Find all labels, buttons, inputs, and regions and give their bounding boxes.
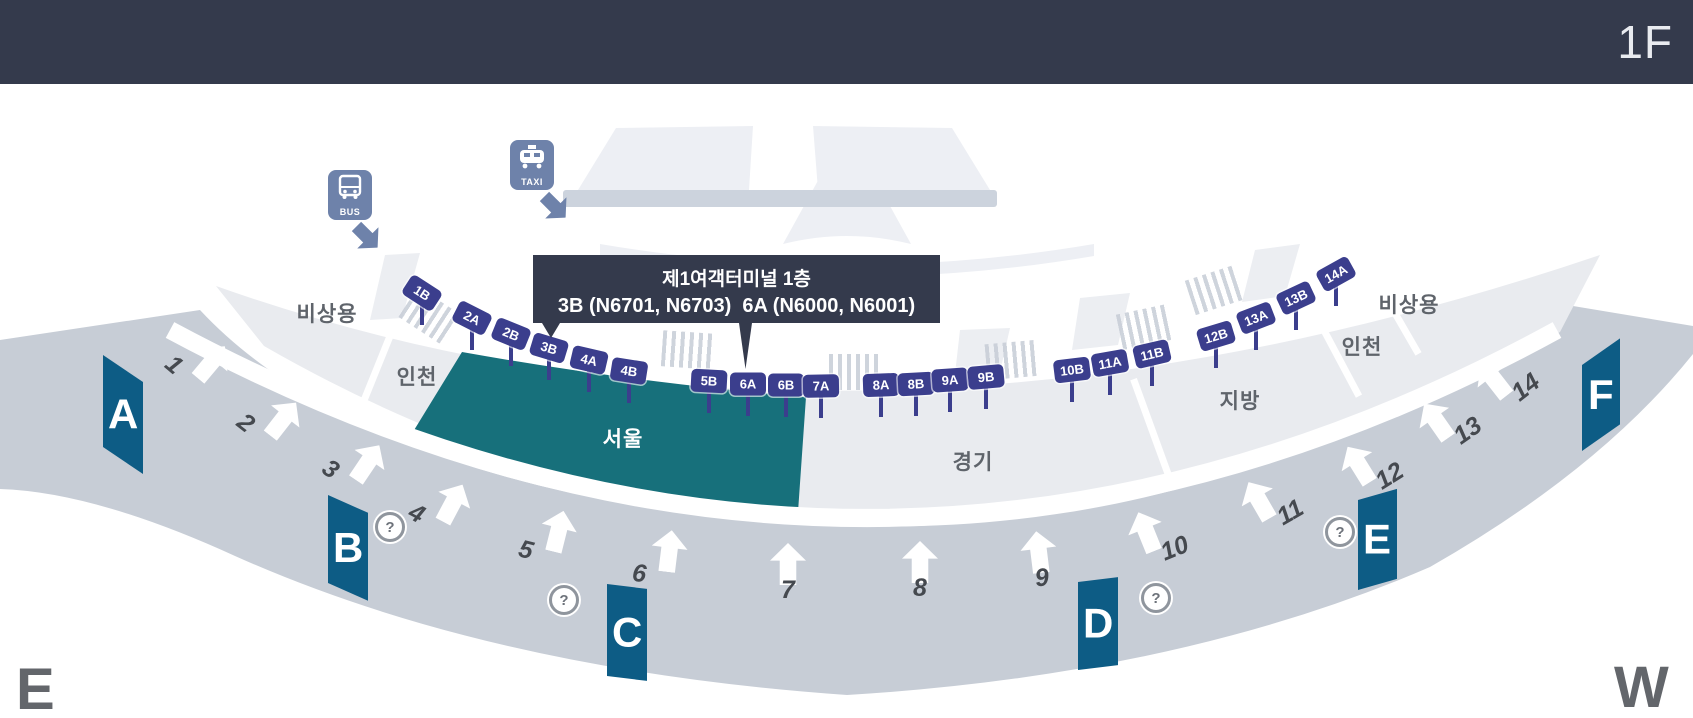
road-stop: 7 (748, 543, 828, 605)
road-stop-number: 4 (403, 498, 429, 530)
information-icon: ? (1325, 517, 1355, 547)
tooltip-terminal-line: 제1여객터미널 1층 (533, 264, 940, 291)
zone-marker-letter: A (108, 390, 138, 438)
road-stop-number: 5 (516, 535, 537, 567)
tooltip-stops-line: 3B (N6701, N6703) 6A (N6000, N6001) (533, 295, 940, 318)
direction-arrow-icon (536, 507, 581, 556)
region-label: 경기 (953, 446, 994, 476)
taxi-icon-label: TAXI (521, 177, 543, 187)
taxi-glyph-icon (517, 144, 547, 170)
gate-stop-sign[interactable]: 8B (897, 372, 934, 397)
direction-arrow-icon (649, 528, 690, 574)
crosswalk-stripes (661, 330, 715, 370)
region-label: 비상용 (297, 298, 358, 328)
region-label: 지방 (1220, 385, 1261, 415)
region-label: 서울 (603, 423, 644, 453)
bus-glyph-icon (336, 174, 364, 200)
taxi-icon: TAXI (510, 140, 554, 190)
gate-stop-sign[interactable]: 10B (1053, 356, 1092, 383)
region-label: 비상용 (1379, 289, 1440, 319)
gate-stop-sign[interactable]: 5B (690, 369, 727, 394)
terminal-map-page: 1F 제1여객터미널 1층 3B (N6701, N6703) 6A (N600… (0, 0, 1693, 718)
gate-stop-sign[interactable]: 6B (768, 374, 804, 397)
zone-marker: C (607, 584, 647, 681)
tooltip-pointer-3b (542, 323, 560, 338)
zone-marker-letter: D (1083, 600, 1113, 648)
information-icon: ? (549, 585, 579, 615)
zone-marker: B (328, 495, 368, 601)
zone-marker-letter: F (1588, 371, 1614, 419)
information-icon: ? (375, 512, 405, 542)
gate-stop-sign[interactable]: 9B (967, 364, 1005, 390)
stop-info-tooltip: 제1여객터미널 1층 3B (N6701, N6703) 6A (N6000, … (533, 255, 940, 323)
compass-west-label: W (1614, 654, 1669, 718)
zone-marker-letter: C (612, 608, 642, 656)
zone-marker-letter: E (1363, 515, 1391, 563)
road-stop: 9 (997, 526, 1084, 597)
bus-icon: BUS (328, 170, 372, 220)
road-stop-number: 6 (630, 559, 647, 589)
header-bar: 1F (0, 0, 1693, 84)
road-stop-number: 8 (913, 574, 927, 603)
gate-stop-sign[interactable]: 9A (931, 367, 969, 392)
gate-stop-sign[interactable]: 8A (863, 373, 900, 397)
information-icon: ? (1141, 583, 1171, 613)
zone-marker-letter: B (333, 524, 363, 572)
road-stop-number: 3 (316, 454, 344, 486)
compass-east-label: E (16, 656, 55, 718)
gate-stop-sign[interactable]: 7A (803, 374, 839, 398)
road-stop: 8 (880, 541, 960, 603)
road-stop-number: 7 (781, 576, 795, 605)
floor-label: 1F (1617, 15, 1673, 69)
zone-marker: D (1078, 577, 1118, 670)
road-stop: 6 (625, 525, 712, 596)
gate-stop-sign[interactable]: 6A (730, 373, 766, 396)
region-label: 인천 (1342, 331, 1383, 361)
region-label: 인천 (397, 361, 438, 391)
bus-icon-label: BUS (340, 207, 361, 217)
